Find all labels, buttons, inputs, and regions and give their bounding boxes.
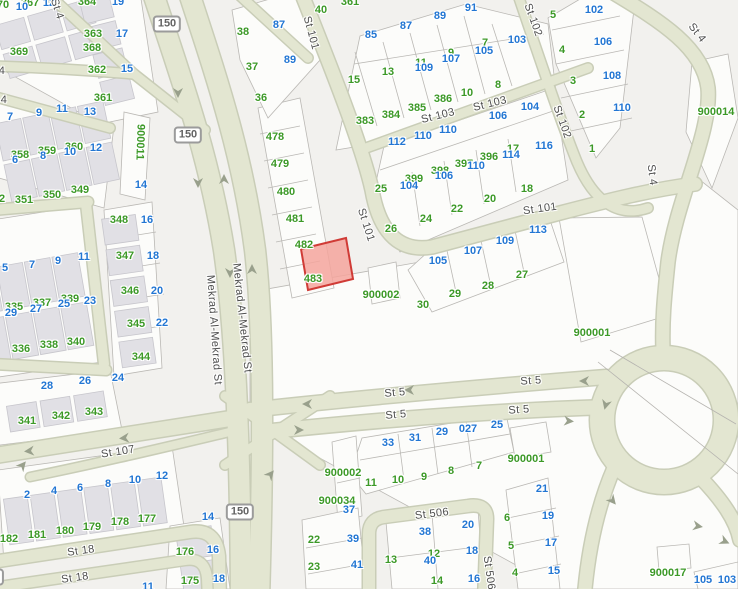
address-number-label: 14 [202, 511, 214, 523]
parcel-number-label: 11 [365, 477, 377, 489]
address-number-label: 103 [718, 574, 736, 586]
parcel-number-label: 8 [495, 79, 501, 91]
parcel-number-label: 344 [132, 351, 150, 363]
address-number-label: 10 [129, 474, 141, 486]
address-number-label: 105 [475, 45, 493, 57]
street-name-label: Mekrad Al-Mekrad St [204, 275, 224, 386]
parcel-number-label: 24 [420, 213, 432, 225]
parcel-number-label: 481 [286, 213, 304, 225]
address-number-label: 12 [90, 142, 102, 154]
address-number-label: 6 [12, 154, 18, 166]
address-number-label: 103 [508, 34, 526, 46]
address-number-label: 106 [489, 110, 507, 122]
address-number-label: 114 [502, 149, 520, 161]
street-name-label: St 102 [522, 2, 545, 38]
address-number-label: 116 [535, 140, 553, 152]
address-number-label: 38 [419, 526, 431, 538]
parcel-number-label: 351 [15, 194, 33, 206]
parcel-number-label: 22 [451, 203, 463, 215]
address-number-label: 108 [603, 70, 621, 82]
parcel-number-label: 3 [570, 75, 576, 87]
address-number-label: 102 [585, 4, 603, 16]
address-number-label: 8 [40, 150, 46, 162]
parcel-number-label: 350 [43, 189, 61, 201]
street-name-label: St 18 [60, 570, 89, 586]
parcel-number-label: 480 [277, 186, 295, 198]
parcel-number-label: 363 [84, 28, 102, 40]
parcel-number-label: 9 [421, 471, 427, 483]
parcel-number-label: 6 [504, 512, 510, 524]
address-number-label: 110 [414, 130, 432, 142]
address-number-label: 37 [343, 504, 355, 516]
address-number-label: 11 [142, 581, 154, 589]
parcel-number-label: 2 [579, 109, 585, 121]
address-number-label: 19 [112, 0, 124, 8]
parcel-number-label: 37 [246, 61, 258, 73]
parcel-number-label: 361 [341, 0, 359, 8]
address-number-label: 85 [365, 29, 377, 41]
parcel-number-label: 14 [431, 575, 443, 587]
street-name-label: 4 [1, 94, 8, 106]
parcel-number-label: 338 [40, 339, 58, 351]
address-number-label: 31 [409, 432, 421, 444]
parcel-number-label: 346 [121, 285, 139, 297]
parcel-number-label: 5 [508, 540, 514, 552]
address-number-label: 21 [536, 483, 548, 495]
street-name-label: St 101 [522, 201, 558, 218]
address-number-label: 105 [429, 255, 447, 267]
parcel-number-label: 176 [176, 546, 194, 558]
parcel-number-label: 23 [308, 561, 320, 573]
address-number-label: 113 [529, 224, 547, 236]
parcel-number-label: 4 [512, 567, 518, 579]
street-name-label: 4 [0, 65, 5, 77]
address-number-label: 15 [548, 565, 560, 577]
address-number-label: 25 [491, 419, 503, 431]
street-name-label: St 101 [301, 15, 321, 51]
parcel-number-label: 364 [78, 0, 96, 8]
address-number-label: 16 [207, 544, 219, 556]
address-number-label: 29 [5, 307, 17, 319]
parcel-number-label: 4 [559, 44, 565, 56]
parcel-number-label: 18 [521, 183, 533, 195]
parcel-number-label: 341 [18, 415, 36, 427]
address-number-label: 110 [613, 102, 631, 114]
address-number-label: 5 [2, 262, 8, 274]
parcel-number-label: 22 [308, 534, 320, 546]
parcel-number-label: 175 [181, 575, 199, 587]
street-name-label: St 4 [686, 21, 708, 45]
parcel-number-label: 20 [484, 193, 496, 205]
street-name-label: St 5 [508, 403, 530, 416]
address-number-label: 105 [694, 574, 712, 586]
address-number-label: 40 [424, 555, 436, 567]
address-number-label: 7 [7, 111, 13, 123]
address-number-label: 110 [467, 160, 485, 172]
address-number-label: 17 [116, 28, 128, 40]
address-number-label: 39 [347, 533, 359, 545]
address-number-label: 106 [594, 36, 612, 48]
parcel-number-label: 479 [271, 158, 289, 170]
address-number-label: 10 [64, 146, 76, 158]
parcel-number-label: 26 [385, 223, 397, 235]
address-number-label: 16 [141, 214, 153, 226]
address-number-label: 41 [351, 559, 363, 571]
parcel-number-label: 340 [67, 336, 85, 348]
address-number-label: 24 [112, 372, 124, 384]
address-number-label: 20 [151, 285, 163, 297]
parcel-number-label: 352 [0, 193, 5, 205]
parcel-number-label: 900002 [325, 467, 362, 479]
parcel-number-label: 177 [138, 513, 156, 525]
parcel-number-label: 15 [348, 74, 360, 86]
route-shield: 150 [226, 504, 254, 521]
address-number-label: 18 [213, 573, 225, 585]
address-number-label: 13 [84, 106, 96, 118]
parcel-number-label: 182 [0, 533, 18, 545]
address-number-label: 107 [442, 53, 460, 65]
address-number-label: 19 [542, 510, 554, 522]
address-number-label: 29 [436, 426, 448, 438]
parcel-number-label: 28 [482, 280, 494, 292]
address-number-label: 89 [284, 54, 296, 66]
street-name-label: St 101 [355, 207, 377, 243]
parcel-number-label: 13 [382, 66, 394, 78]
parcel-number-label: 179 [83, 521, 101, 533]
route-shield: 150 [174, 127, 202, 144]
street-name-label: St 506 [414, 506, 449, 522]
address-number-label: 89 [434, 10, 446, 22]
parcel-number-label: 10 [392, 474, 404, 486]
street-name-label: St 506 [481, 555, 498, 589]
parcel-number-label: 362 [88, 64, 106, 76]
address-number-label: 18 [466, 545, 478, 557]
address-number-label: 22 [156, 317, 168, 329]
address-number-label: 6 [77, 482, 83, 494]
parcel-number-label: 347 [116, 250, 134, 262]
address-number-label: 109 [496, 235, 514, 247]
parcel-number-label: 900001 [574, 327, 611, 339]
parcel-number-label: 383 [356, 115, 374, 127]
address-number-label: 25 [58, 298, 70, 310]
address-number-label: 11 [78, 251, 90, 263]
parcel-number-label: 5 [550, 9, 556, 21]
route-shield: 3 [0, 569, 4, 586]
address-number-label: 2 [24, 489, 30, 501]
parcel-number-label: 70 [0, 0, 9, 11]
address-number-label: 17 [545, 537, 557, 549]
parcel-number-label: 181 [28, 529, 46, 541]
parcel-number-label: 361 [94, 92, 112, 104]
parcel-number-label: 30 [417, 299, 429, 311]
address-number-label: 91 [465, 2, 477, 14]
parcel-number-label: 482 [295, 239, 313, 251]
address-number-label: 4 [51, 485, 57, 497]
street-name-label: St 5 [385, 408, 407, 422]
address-number-label: 18 [147, 250, 159, 262]
address-number-label: 104 [400, 180, 418, 192]
parcel-number-label: 478 [266, 131, 284, 143]
address-number-label: 109 [415, 62, 433, 74]
address-number-label: 26 [79, 375, 91, 387]
address-number-label: 9 [36, 107, 42, 119]
address-number-label: 9 [55, 255, 61, 267]
parcel-number-label: 384 [382, 109, 400, 121]
address-number-label: 15 [121, 63, 133, 75]
parcel-number-label: 342 [52, 410, 70, 422]
parcel-number-label: 178 [111, 516, 129, 528]
address-number-label: 11 [56, 103, 68, 115]
parcel-number-label: 10 [461, 87, 473, 99]
parcel-number-label: 180 [56, 525, 74, 537]
address-number-label: 28 [41, 380, 53, 392]
parcel-number-label: 900017 [650, 567, 687, 579]
street-name-label: Mekrad Al-Mekrad St [230, 263, 253, 374]
parcel-number-label: 368 [83, 42, 101, 54]
parcel-number-label: 40 [315, 4, 327, 16]
parcel-number-label: 27 [516, 269, 528, 281]
street-name-label: St 5 [520, 374, 542, 387]
parcel-number-label: 348 [110, 214, 128, 226]
parcel-number-label: 7 [476, 460, 482, 472]
parcel-number-label: 336 [12, 343, 30, 355]
parcel-number-label: 13 [385, 554, 397, 566]
parcel-number-label: 369 [10, 46, 28, 58]
parcel-number-label: 385 [408, 102, 426, 114]
address-number-label: 106 [435, 170, 453, 182]
street-name-label: St 4 [48, 0, 66, 21]
parcel-number-label: 38 [237, 26, 249, 38]
address-number-label: 104 [521, 101, 539, 113]
parcel-number-label: 900011 [133, 124, 146, 161]
parcel-number-label: 25 [375, 183, 387, 195]
address-number-label: 16 [468, 573, 480, 585]
address-number-label: 14 [135, 179, 147, 191]
address-number-label: 10 [16, 1, 28, 13]
street-name-label: St 102 [551, 104, 574, 140]
parcel-number-label: 900002 [363, 289, 400, 301]
parcel-number-label: 1 [589, 143, 595, 155]
map-label-layer: 7036736436936836336236136140383736358359… [0, 0, 738, 589]
address-number-label: 110 [439, 124, 457, 136]
street-name-label: St 107 [100, 443, 136, 460]
address-number-label: 12 [156, 470, 168, 482]
map-viewport[interactable]: 7036736436936836336236136140383736358359… [0, 0, 738, 589]
parcel-number-label: 36 [255, 92, 267, 104]
address-number-label: 87 [400, 20, 412, 32]
route-shield: 150 [153, 16, 181, 33]
address-number-label: 027 [459, 423, 477, 435]
parcel-number-label: 345 [127, 318, 145, 330]
parcel-number-label: 343 [85, 406, 103, 418]
street-name-label: St 4 [645, 164, 659, 186]
address-number-label: 112 [388, 136, 406, 148]
address-number-label: 8 [105, 478, 111, 490]
address-number-label: 33 [382, 437, 394, 449]
parcel-number-label: 349 [71, 184, 89, 196]
parcel-number-label: 8 [448, 465, 454, 477]
address-number-label: 107 [464, 245, 482, 257]
address-number-label: 20 [462, 519, 474, 531]
parcel-number-label: 900014 [698, 106, 735, 118]
street-name-label: St 5 [384, 386, 406, 400]
street-name-label: St 18 [66, 543, 95, 559]
address-number-label: 27 [30, 303, 42, 315]
address-number-label: 7 [29, 259, 35, 271]
parcel-number-label: 900001 [508, 453, 545, 465]
address-number-label: 23 [84, 295, 96, 307]
address-number-label: 87 [273, 19, 285, 31]
parcel-number-label: 483 [304, 273, 322, 285]
parcel-number-label: 29 [449, 288, 461, 300]
parcel-number-label: 386 [434, 93, 452, 105]
